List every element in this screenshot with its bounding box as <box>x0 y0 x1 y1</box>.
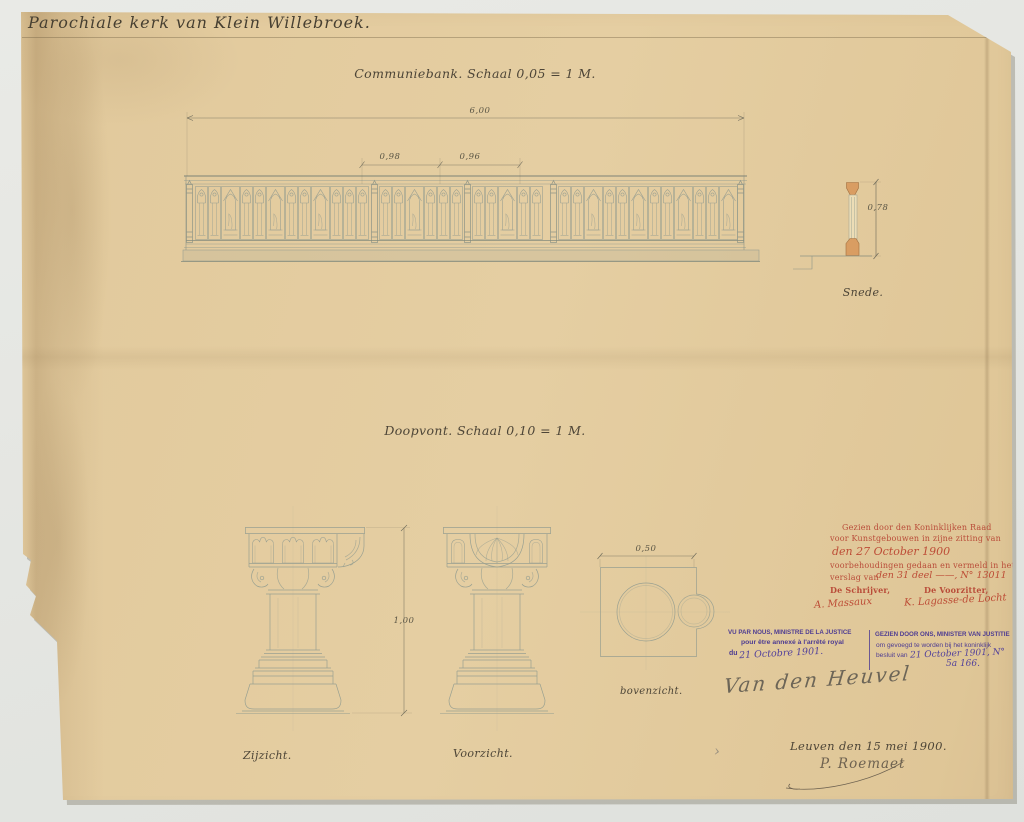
font-top-view <box>580 553 730 670</box>
font-front-view <box>440 506 554 731</box>
bench-dimensions <box>187 112 744 184</box>
scanned-architectural-drawing: Parochiale kerk van Klein Willebroek. Co… <box>0 0 1024 822</box>
stamp-prefix: du <box>729 650 738 657</box>
stamp-line: GEZIEN DOOR ONS, MINISTER VAN JUSTITIE <box>875 631 1010 638</box>
bench-cross-section <box>793 179 881 269</box>
stamp-line: pour être annexé à l'arrêté royal <box>741 639 844 646</box>
stamp-prefix: besluit van <box>876 652 908 659</box>
stamp-line: voorbehoudingen gedaan en vermeld in het <box>830 561 1015 570</box>
chair-signature: K. Lagasse-de Locht <box>904 592 1007 608</box>
font-side-view <box>236 506 365 731</box>
stamp-line: VU PAR NOUS, MINISTRE DE LA JUSTICE <box>728 629 851 636</box>
clerk-title: De Schrijver, <box>830 585 890 595</box>
paper-sheet: Parochiale kerk van Klein Willebroek. Co… <box>0 0 1024 822</box>
stamp-handwritten-date: den 27 October 1900 <box>832 545 950 558</box>
stamp-handwritten-number: 5a 166. <box>946 659 980 669</box>
stamp-line: voor Kunstgebouwen in zijne zitting van <box>830 534 1001 543</box>
stamp-line: verslag van <box>830 573 879 582</box>
drawing-layer <box>0 0 1024 822</box>
place-date: Leuven den 15 mei 1900. <box>790 739 947 753</box>
royal-commission-stamp: Gezien door den Koninklijken Raad voor K… <box>828 523 1010 623</box>
font-dimensions <box>352 525 412 716</box>
stamp-handwritten-ref: den 31 deel ——, N° 13011 <box>876 570 1007 581</box>
stamp-handwritten-date: 21 Octobre 1901. <box>739 646 824 661</box>
architect-signature: P. Roemaet <box>820 756 905 772</box>
communion-bench-elevation <box>181 176 760 262</box>
stamp-line: Gezien door den Koninklijken Raad <box>842 523 992 532</box>
